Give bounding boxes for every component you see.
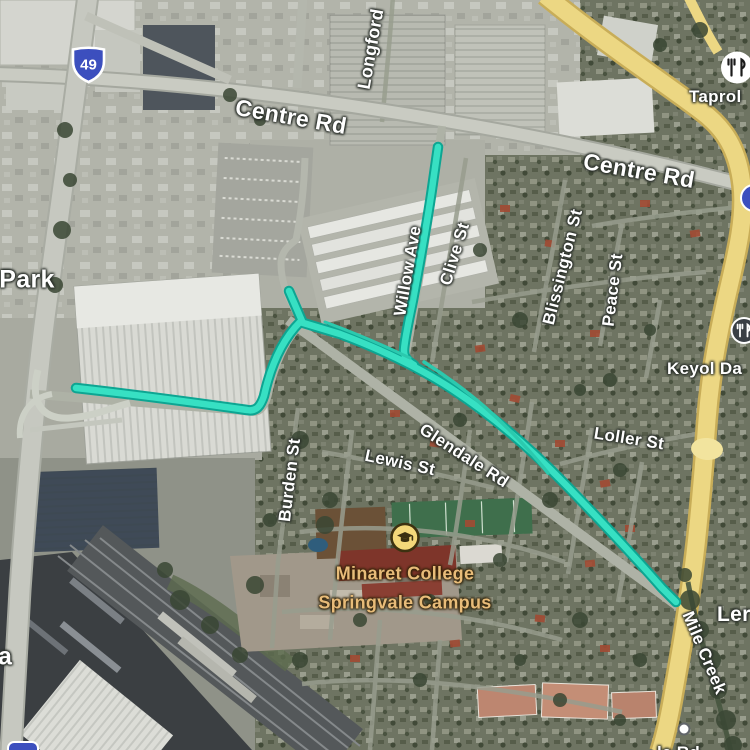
route-shield-49: 49 [70, 45, 107, 89]
svg-text:49: 49 [80, 57, 97, 74]
restaurant-icon[interactable] [729, 316, 750, 351]
place-label-right-edge-partial: Ler [717, 603, 750, 627]
place-label-left-edge-partial: a [0, 643, 12, 672]
map-viewport[interactable]: Centre Rd Centre Rd Longford Willow Ave … [0, 0, 750, 750]
poi-label-minaret-college-line2[interactable]: Springvale Campus [318, 593, 491, 614]
satellite-imagery[interactable] [0, 0, 750, 750]
route-shield-partial-bottom [7, 741, 39, 750]
place-label-park-partial: Park [0, 266, 55, 295]
place-label-bottom-edge-partial: le Rd [657, 743, 700, 750]
poi-label-keyol-partial[interactable]: Keyol Da [667, 359, 742, 379]
poi-label-minaret-college-line1[interactable]: Minaret College [336, 564, 475, 585]
restaurant-icon[interactable] [719, 50, 750, 91]
school-icon[interactable] [389, 522, 421, 559]
poi-dot[interactable] [678, 723, 691, 736]
